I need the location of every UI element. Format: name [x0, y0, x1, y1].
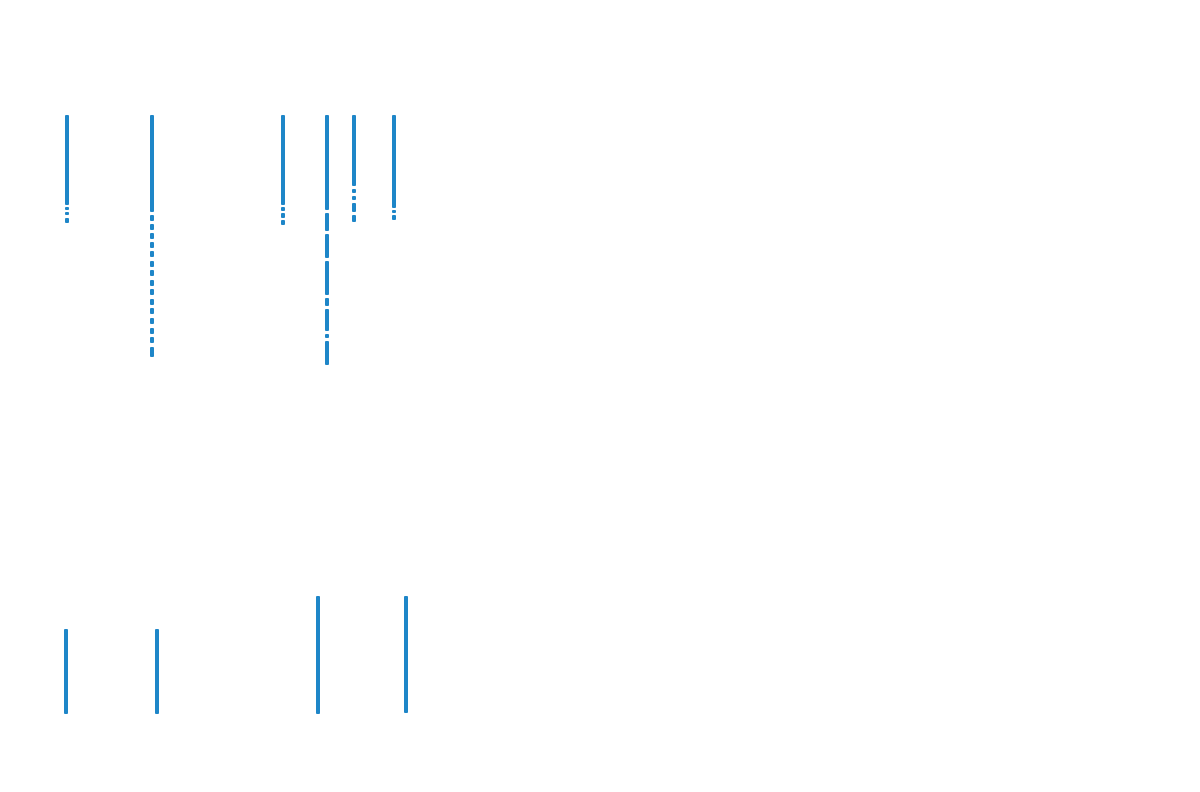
event-line-segment: [150, 261, 154, 267]
event-line-segment: [150, 233, 154, 239]
event-line-segment: [325, 213, 329, 231]
event-line-segment: [150, 299, 154, 305]
event-line-segment: [352, 189, 356, 193]
event-line-segment: [325, 298, 329, 306]
event-line-segment: [150, 224, 154, 230]
event-line-segment: [325, 115, 329, 210]
event-line-segment: [325, 261, 329, 295]
event-line-segment: [150, 115, 154, 212]
event-line-segment: [150, 270, 154, 276]
event-line-segment: [150, 242, 154, 248]
event-line-segment: [281, 213, 285, 218]
event-plot-canvas: [0, 0, 1200, 792]
event-line-segment: [352, 115, 356, 186]
event-line-segment: [325, 334, 329, 338]
event-line-segment: [392, 210, 396, 213]
event-line-segment: [150, 347, 154, 357]
event-line-segment: [65, 218, 69, 223]
event-line-segment: [316, 596, 320, 714]
event-line-segment: [325, 234, 329, 258]
event-line-segment: [64, 629, 68, 714]
event-line-segment: [150, 251, 154, 257]
event-line-segment: [392, 215, 396, 220]
event-line-segment: [150, 289, 154, 295]
event-line-segment: [150, 337, 154, 343]
event-line-segment: [352, 203, 356, 212]
event-line-segment: [150, 215, 154, 221]
event-line-segment: [325, 309, 329, 331]
event-line-segment: [150, 308, 154, 314]
event-line-segment: [65, 115, 69, 205]
event-line-segment: [325, 341, 329, 365]
event-line-segment: [150, 318, 154, 324]
event-line-segment: [65, 212, 69, 215]
event-line-segment: [281, 115, 285, 205]
event-line-segment: [150, 280, 154, 286]
event-line-segment: [281, 220, 285, 225]
event-line-segment: [281, 207, 285, 211]
event-line-segment: [352, 215, 356, 222]
event-line-segment: [65, 207, 69, 210]
event-line-segment: [404, 596, 408, 713]
event-line-segment: [155, 629, 159, 714]
event-line-segment: [352, 196, 356, 200]
event-line-segment: [150, 328, 154, 334]
event-line-segment: [392, 115, 396, 208]
